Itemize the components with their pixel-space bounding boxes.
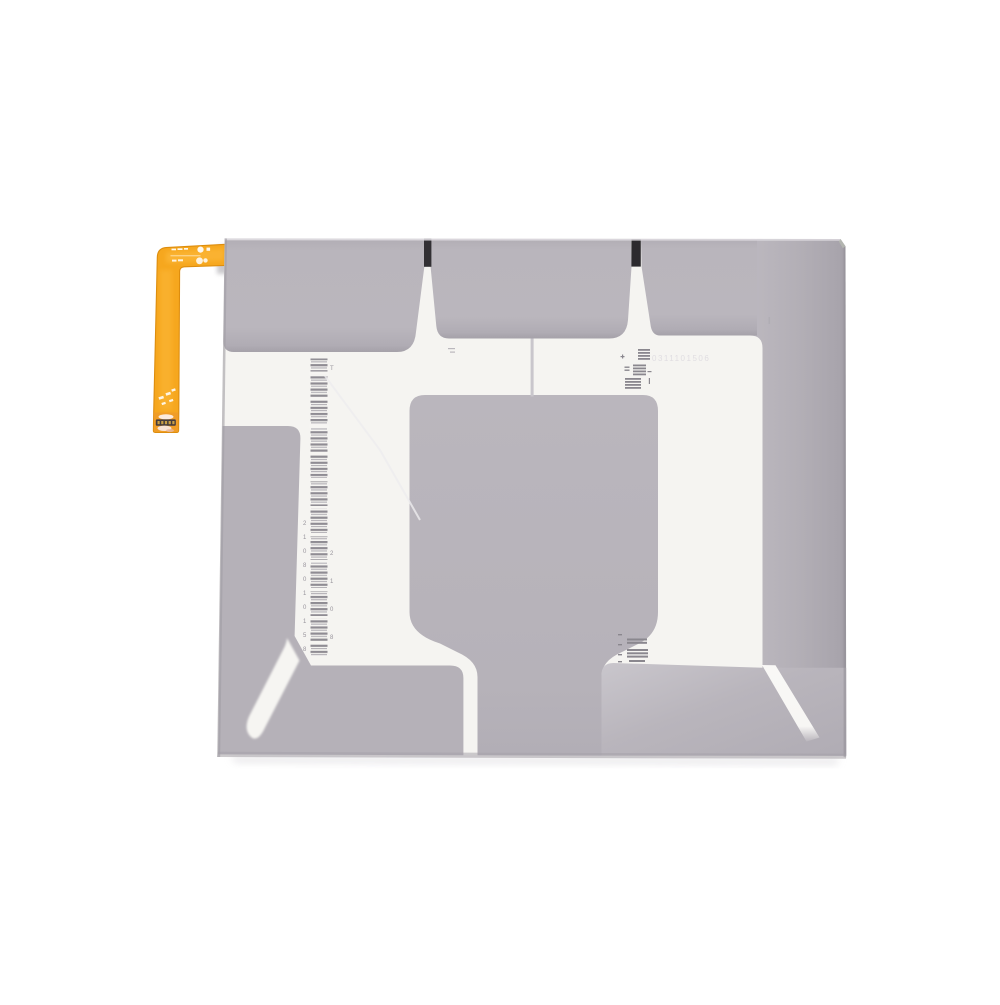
svg-text:0311101506: 0311101506 xyxy=(652,354,710,363)
svg-text:T: T xyxy=(330,366,334,372)
